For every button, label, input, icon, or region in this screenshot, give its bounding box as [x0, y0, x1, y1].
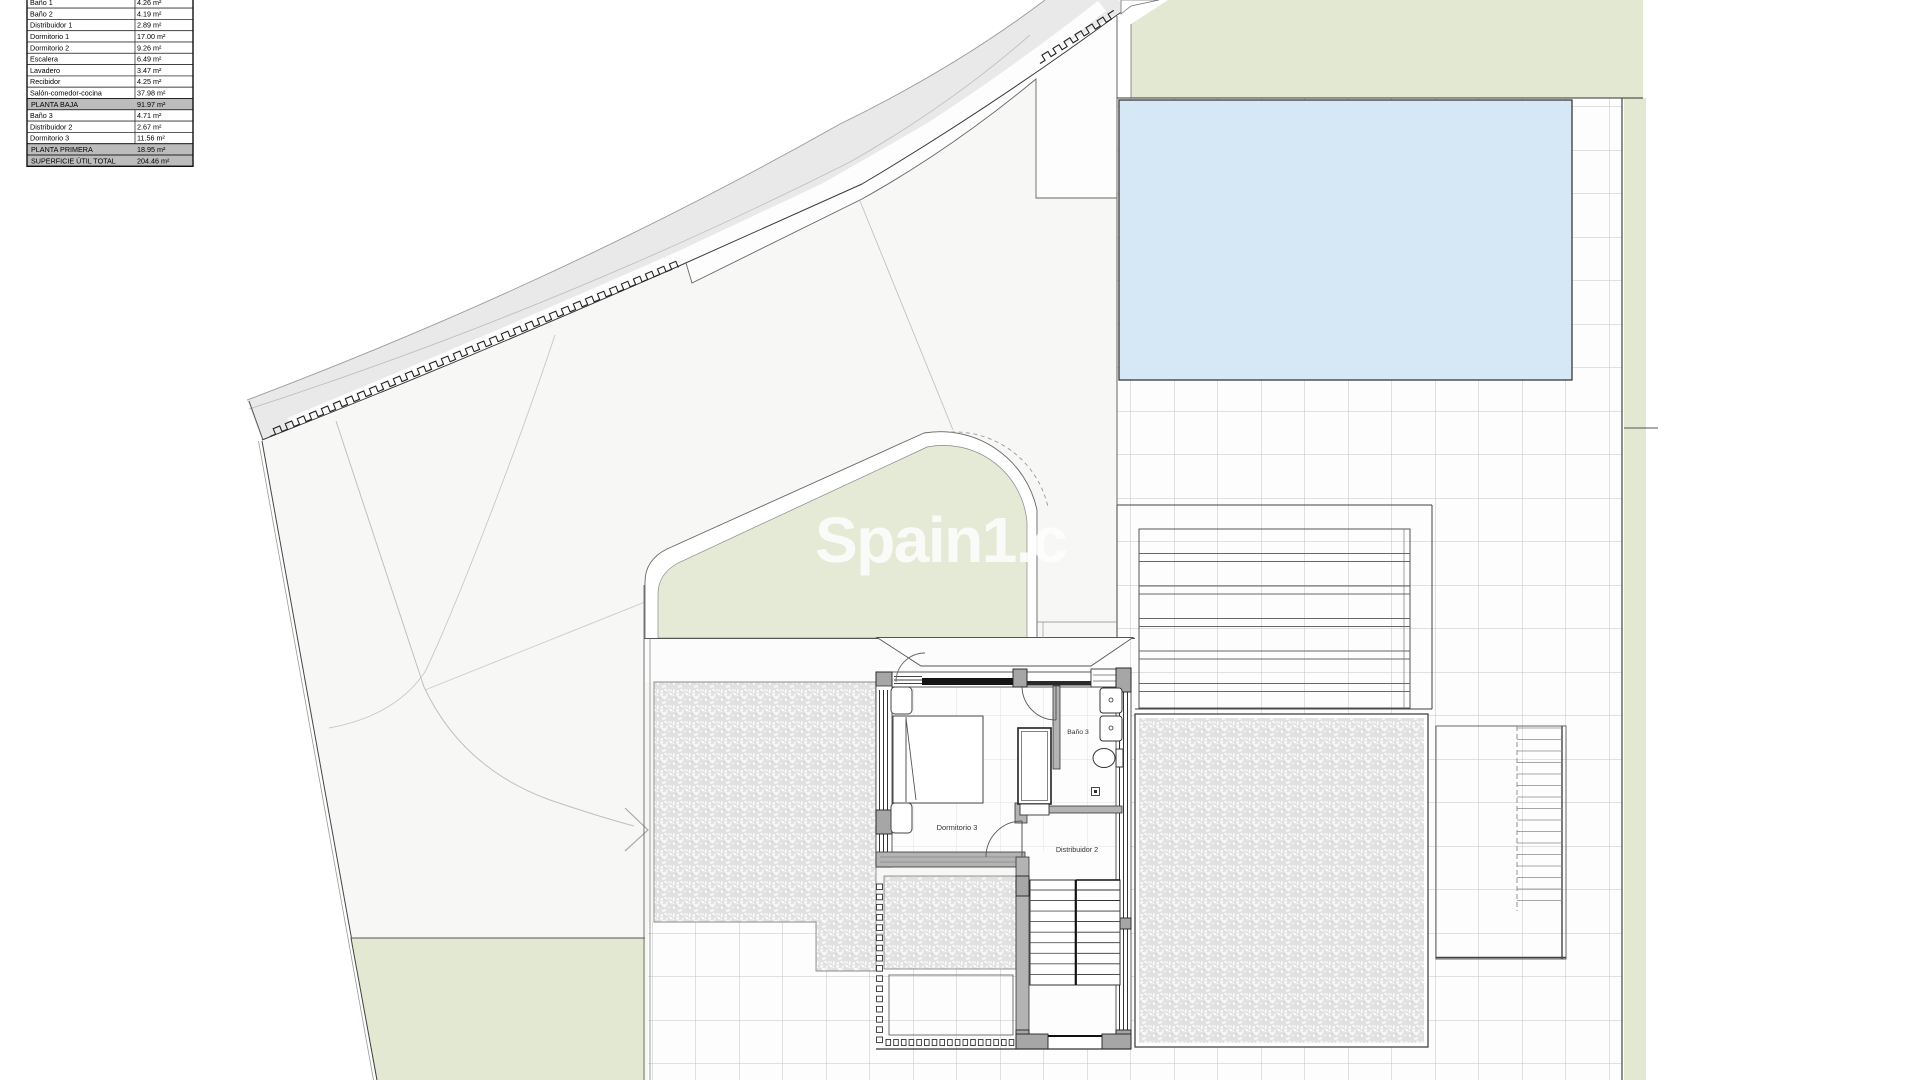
svg-text:PLANTA PRIMERA: PLANTA PRIMERA	[31, 145, 93, 154]
svg-text:4.25 m²: 4.25 m²	[137, 77, 162, 86]
svg-text:Distribuidor 1: Distribuidor 1	[30, 21, 72, 30]
svg-text:Salón-comedor-cocina: Salón-comedor-cocina	[30, 89, 102, 98]
svg-text:9.26 m²: 9.26 m²	[137, 43, 162, 52]
svg-text:37.98 m²: 37.98 m²	[137, 89, 166, 98]
svg-text:2.89 m²: 2.89 m²	[137, 21, 162, 30]
svg-text:18.95 m²: 18.95 m²	[137, 145, 166, 154]
svg-text:17.00 m²: 17.00 m²	[137, 32, 166, 41]
svg-text:Escalera: Escalera	[30, 55, 58, 64]
svg-text:Distribuidor 2: Distribuidor 2	[1056, 845, 1098, 854]
svg-text:Recibidor: Recibidor	[30, 77, 61, 86]
svg-text:Dormitorio 3: Dormitorio 3	[30, 134, 69, 143]
svg-text:Lavadero: Lavadero	[30, 66, 60, 75]
svg-text:91.97 m²: 91.97 m²	[137, 100, 166, 109]
svg-text:4.71 m²: 4.71 m²	[137, 111, 162, 120]
svg-text:Dormitorio 2: Dormitorio 2	[30, 43, 69, 52]
svg-text:204.46 m²: 204.46 m²	[137, 156, 170, 165]
svg-text:3.47 m²: 3.47 m²	[137, 66, 162, 75]
svg-text:4.26 m²: 4.26 m²	[137, 0, 162, 7]
svg-text:Baño 2: Baño 2	[30, 9, 53, 18]
svg-text:2.67 m²: 2.67 m²	[137, 122, 162, 131]
svg-text:Distribuidor 2: Distribuidor 2	[30, 122, 72, 131]
svg-text:SUPERFICIE ÚTIL TOTAL: SUPERFICIE ÚTIL TOTAL	[31, 156, 116, 165]
svg-text:Baño 3: Baño 3	[30, 111, 53, 120]
svg-text:Spain1.c: Spain1.c	[815, 504, 1066, 576]
svg-text:PLANTA BAJA: PLANTA BAJA	[31, 100, 78, 109]
svg-text:Baño 1: Baño 1	[30, 0, 53, 7]
svg-text:Baño 3: Baño 3	[1067, 729, 1089, 736]
svg-text:Dormitorio 3: Dormitorio 3	[937, 823, 978, 832]
svg-text:4.19 m²: 4.19 m²	[137, 9, 162, 18]
svg-text:Dormitorio 1: Dormitorio 1	[30, 32, 69, 41]
svg-text:11.56 m²: 11.56 m²	[137, 134, 165, 143]
svg-text:6.49 m²: 6.49 m²	[137, 55, 162, 64]
